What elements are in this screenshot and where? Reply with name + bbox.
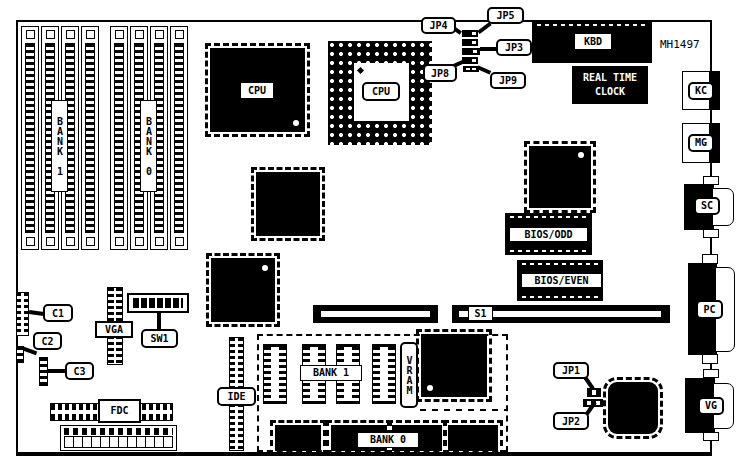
power-cells: [64, 436, 173, 448]
simm-latch: [66, 237, 75, 246]
rtc-label-line2: CLOCK: [595, 86, 625, 98]
pin1-dot: [427, 385, 433, 391]
connector-screw: [703, 369, 719, 378]
simm-module: [174, 43, 184, 233]
vg-label: VG: [698, 397, 724, 415]
simm-slot: [81, 26, 99, 250]
rtc-label-line1: REAL TIME: [583, 72, 637, 84]
cpu-qfp-label: CPU: [240, 82, 274, 99]
jumper-jp5: [462, 39, 478, 46]
connector-screw: [702, 354, 718, 364]
pin1-dot: [293, 120, 299, 126]
motherboard-diagram: MH1497 BANK 1 BANK 0: [0, 0, 740, 465]
callout-jp8: JP8: [423, 64, 457, 82]
simm-latch: [86, 237, 95, 246]
simm-latch: [46, 237, 55, 246]
mg-label: MG: [688, 134, 714, 152]
cpu-pga-label: CPU: [362, 82, 400, 101]
callout-jp3: JP3: [496, 39, 532, 56]
s1-label: S1: [468, 306, 493, 321]
jumper-jp3: [462, 48, 480, 55]
simm-module: [25, 43, 35, 233]
simm-latch: [46, 30, 55, 39]
asic-chip: [529, 146, 591, 208]
pc-label: PC: [696, 300, 723, 319]
connector-screw: [703, 176, 719, 185]
fdc-label: FDC: [98, 399, 141, 423]
c1-header: [16, 292, 29, 336]
vram-label: VRAM: [400, 342, 418, 408]
bank0-label: BANK 0: [140, 100, 157, 192]
asic-chip: [256, 172, 320, 236]
chip-pins: [510, 250, 587, 252]
rtc-chip: REAL TIME CLOCK: [572, 66, 648, 104]
callout-jp1: JP1: [553, 362, 589, 379]
s1-slot-segment: S1: [452, 305, 670, 323]
sw1-dip-switch: [127, 293, 189, 313]
simm-latch: [175, 237, 184, 246]
bios-odd-label: BIOS/ODD: [509, 227, 588, 242]
expansion-slot-segment: [313, 305, 438, 323]
callout-pointer: [48, 369, 65, 373]
callout-c1: C1: [43, 304, 73, 322]
connector-notch: [537, 24, 647, 26]
chip-pins: [522, 263, 598, 265]
callout-sw1: SW1: [141, 329, 178, 348]
power-pins: [64, 428, 173, 435]
simm-slot: [110, 26, 128, 250]
simm-slot: [170, 26, 188, 250]
simm-latch: [26, 237, 35, 246]
pin1-dot: [578, 152, 584, 158]
simm-latch: [135, 237, 144, 246]
callout-jp9: JP9: [490, 72, 526, 89]
bank0-bottom-label: BANK 0: [357, 432, 419, 448]
callout-jp5: JP5: [487, 7, 524, 24]
ide-label: IDE: [217, 387, 256, 406]
simm-module: [114, 43, 124, 233]
connector-screw: [702, 254, 718, 264]
region-divider: [420, 409, 508, 411]
simm-latch: [66, 30, 75, 39]
kc-label: KC: [688, 82, 714, 100]
simm-latch: [155, 30, 164, 39]
bios-even-label: BIOS/EVEN: [521, 273, 602, 288]
simm-latch: [86, 30, 95, 39]
vram-controller-chip: [421, 334, 487, 397]
callout-c3: C3: [65, 362, 94, 380]
vga-label: VGA: [95, 321, 133, 338]
callout-jp2: JP2: [553, 412, 589, 430]
simm-latch: [155, 237, 164, 246]
part-number: MH1497: [660, 38, 700, 51]
plcc-chip: [608, 382, 658, 434]
simm-slot: [21, 26, 39, 250]
bank1-bottom-label: BANK 1: [300, 365, 362, 381]
chip-pins: [510, 216, 587, 218]
callout-c2: C2: [33, 332, 62, 350]
simm-latch: [26, 30, 35, 39]
chip-pins: [522, 296, 598, 298]
simm-latch: [135, 30, 144, 39]
pin1-dot: [262, 265, 268, 271]
sc-label: SC: [694, 197, 720, 215]
kbd-label: KBD: [574, 33, 612, 50]
c3-header: [39, 357, 48, 386]
bank1-label: BANK 1: [51, 100, 68, 192]
connector-screw: [703, 432, 719, 441]
jumper-jp4: [462, 30, 478, 37]
connector-screw: [703, 229, 719, 238]
simm-latch: [115, 237, 124, 246]
jumper-jp1: [587, 388, 601, 397]
simm-module: [85, 43, 95, 233]
simm-latch: [175, 30, 184, 39]
callout-jp4: JP4: [421, 17, 456, 34]
simm-latch: [115, 30, 124, 39]
callout-pointer: [480, 47, 496, 51]
power-connector: [60, 425, 177, 451]
asic-chip: [211, 258, 275, 322]
slot-opening: [321, 311, 430, 317]
